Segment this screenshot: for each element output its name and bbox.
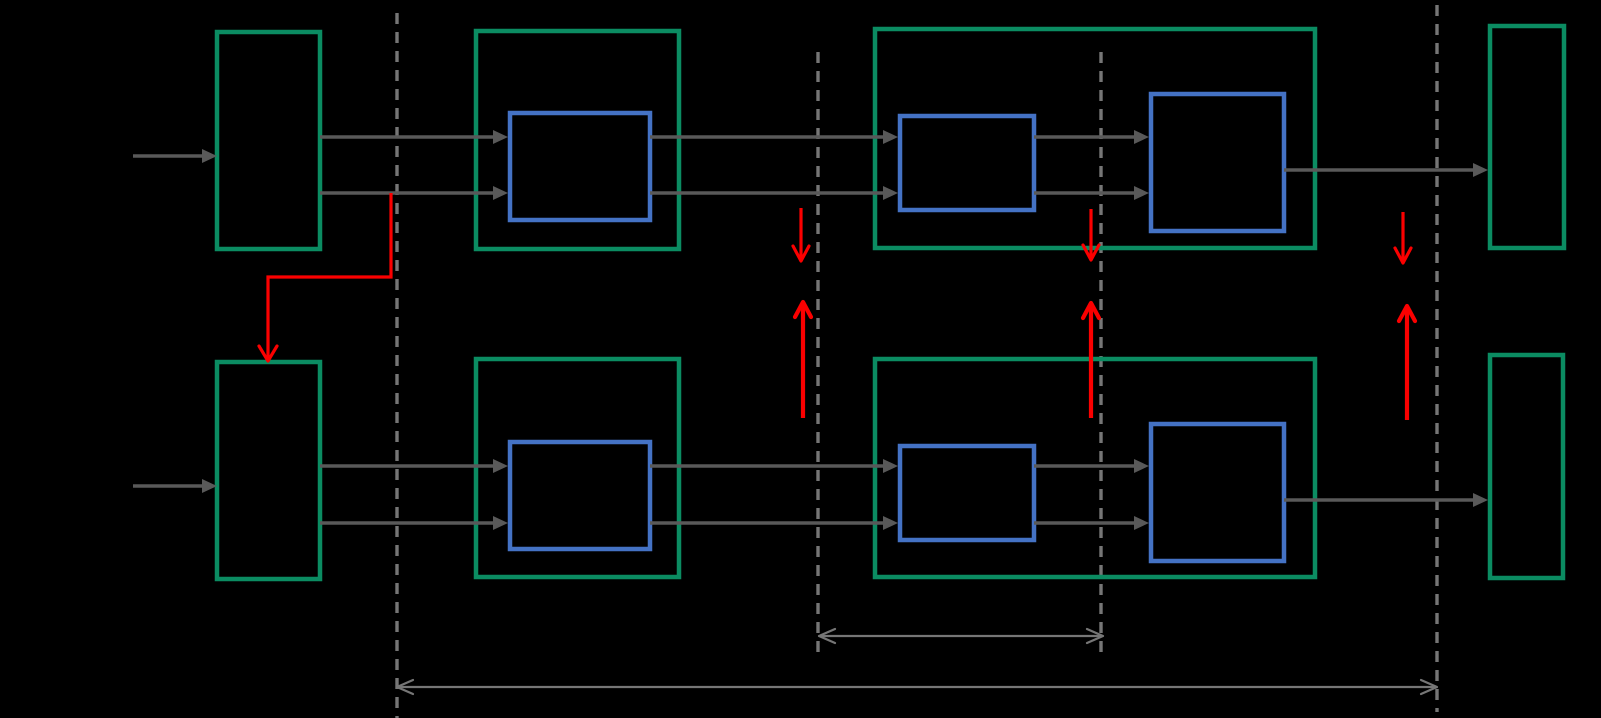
upper-reg-to-stage1-top-head-icon <box>493 130 508 144</box>
upper-stage2-block-b <box>1151 94 1284 231</box>
upper-reg-to-stage1-bottom-head-icon <box>493 186 508 200</box>
lower-output-arrow-head-icon <box>1473 493 1488 507</box>
upper-to-lower-feed-connector <box>268 193 391 358</box>
lower-stage2-container <box>875 359 1315 577</box>
lower-block-a-to-b-top-head-icon <box>1134 459 1149 473</box>
upper-input-register <box>217 32 320 249</box>
lower-stage1-to-stage2-top-head-icon <box>883 459 898 473</box>
upper-block-a-to-b-top-head-icon <box>1134 130 1149 144</box>
lower-stage2-block-a <box>900 446 1034 540</box>
upper-output-arrow-head-icon <box>1473 163 1488 177</box>
lower-stage1-block <box>510 442 650 549</box>
upper-stage1-to-stage2-top-head-icon <box>883 130 898 144</box>
upper-block-a-to-b-bottom-head-icon <box>1134 186 1149 200</box>
upper-stage1-to-stage2-bottom-head-icon <box>883 186 898 200</box>
lower-reg-to-stage1-bottom-head-icon <box>493 516 508 530</box>
diagram-canvas <box>0 0 1601 718</box>
lower-output-register <box>1490 355 1563 578</box>
upper-stage2-block-a <box>900 116 1034 210</box>
lower-block-a-to-b-bottom-head-icon <box>1134 516 1149 530</box>
upper-stage1-block <box>510 113 650 220</box>
lower-reg-to-stage1-top-head-icon <box>493 459 508 473</box>
lower-input-register <box>217 362 320 579</box>
pipeline-block-diagram <box>0 0 1601 718</box>
upper-output-register <box>1490 26 1564 248</box>
lower-stage2-block-b <box>1151 424 1284 561</box>
lower-stage1-to-stage2-bottom-head-icon <box>883 516 898 530</box>
